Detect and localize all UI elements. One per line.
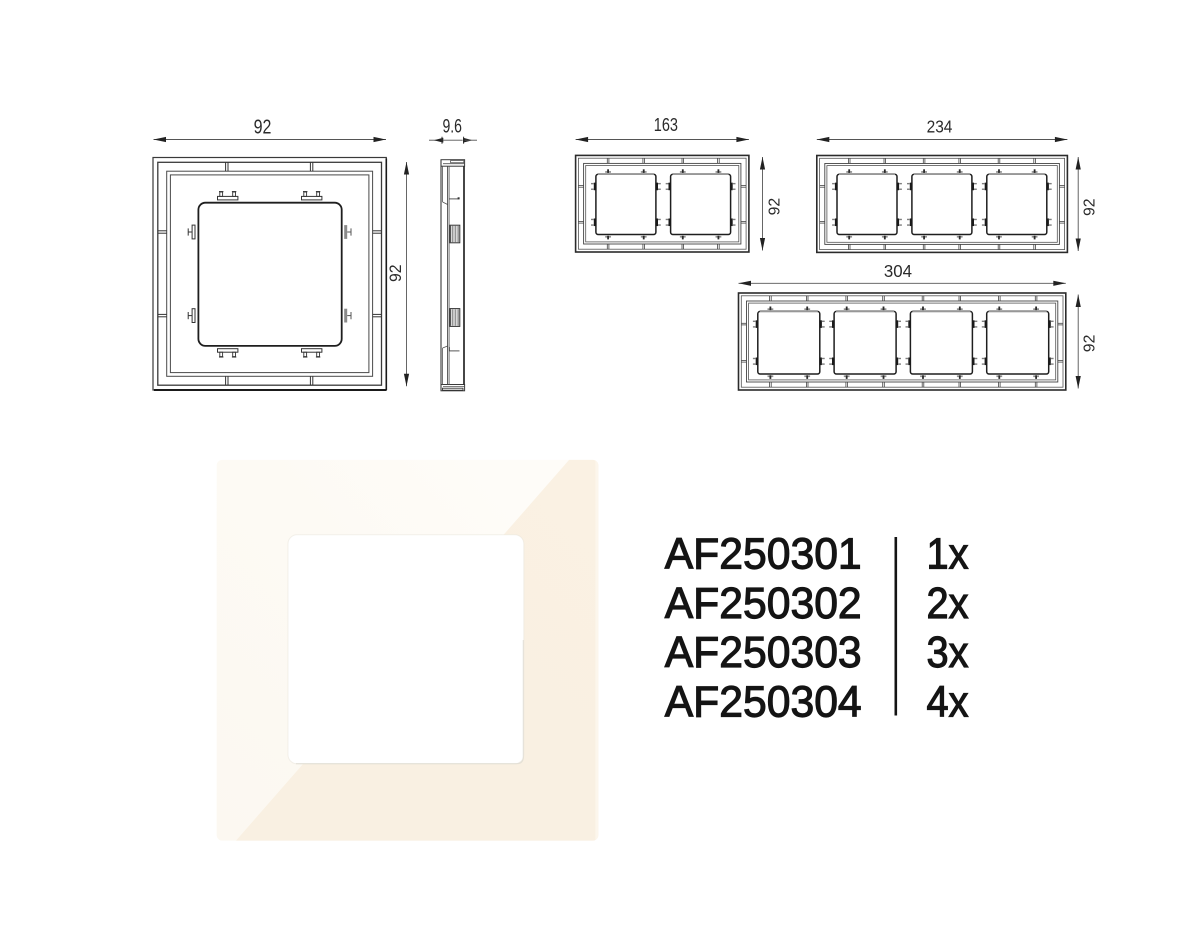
- svg-text:AF250304: AF250304: [665, 678, 862, 727]
- svg-text:4x: 4x: [927, 678, 969, 727]
- svg-text:1x: 1x: [927, 530, 969, 579]
- svg-text:92: 92: [1081, 198, 1098, 216]
- svg-text:AF250303: AF250303: [665, 628, 862, 677]
- svg-text:AF250301: AF250301: [665, 530, 862, 579]
- svg-text:163: 163: [654, 114, 678, 135]
- svg-text:3x: 3x: [927, 628, 969, 677]
- svg-text:92: 92: [387, 264, 405, 282]
- svg-text:AF250302: AF250302: [665, 579, 862, 628]
- svg-text:2x: 2x: [927, 579, 969, 628]
- svg-text:234: 234: [927, 116, 953, 136]
- svg-text:9.6: 9.6: [442, 116, 462, 137]
- svg-text:304: 304: [884, 261, 912, 281]
- svg-text:92: 92: [254, 116, 272, 138]
- svg-text:92: 92: [1082, 334, 1099, 352]
- svg-text:92: 92: [766, 198, 783, 216]
